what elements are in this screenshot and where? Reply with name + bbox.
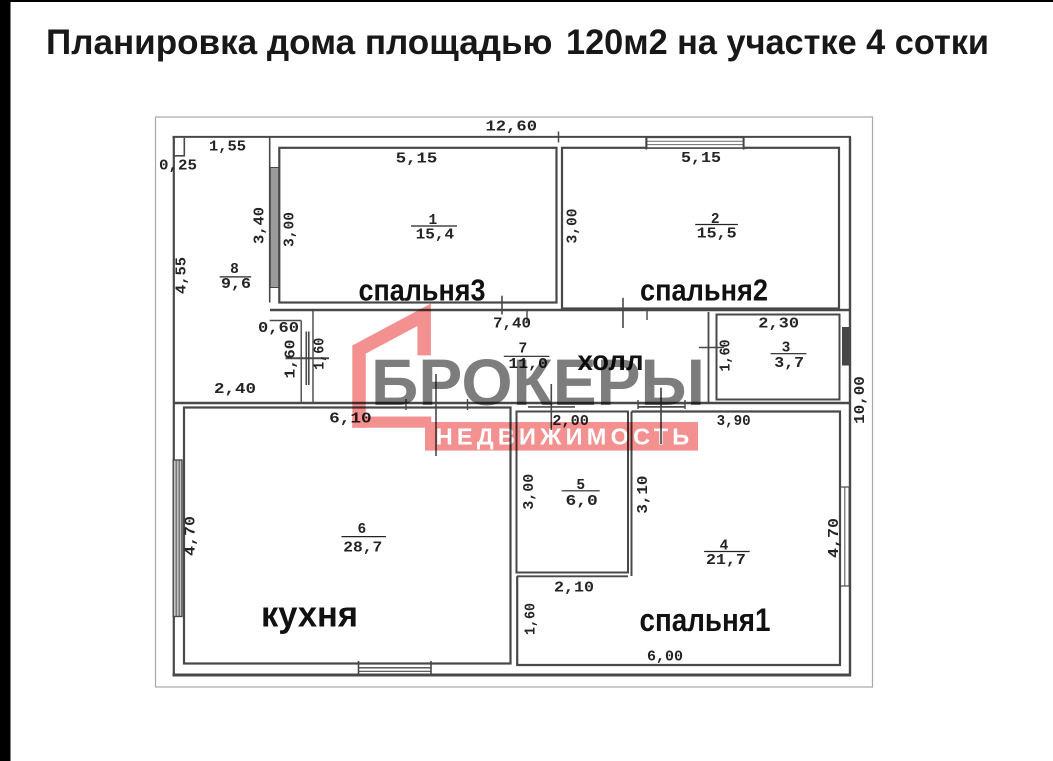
svg-text:1,55: 1,55 <box>209 140 246 156</box>
svg-text:Планировка дома площадью: Планировка дома площадью <box>46 23 553 62</box>
svg-text:5,15: 5,15 <box>681 151 721 167</box>
svg-text:6,0: 6,0 <box>566 494 598 510</box>
svg-text:1,60: 1,60 <box>719 340 735 372</box>
svg-text:1,60: 1,60 <box>284 340 300 379</box>
svg-text:28,7: 28,7 <box>343 541 382 557</box>
svg-text:9,6: 9,6 <box>221 277 251 293</box>
svg-text:кухня: кухня <box>261 594 358 635</box>
svg-text:6: 6 <box>358 522 367 538</box>
svg-text:3,00: 3,00 <box>566 209 582 244</box>
svg-text:2,40: 2,40 <box>214 382 256 398</box>
svg-text:12,60: 12,60 <box>486 120 538 136</box>
svg-text:10,00: 10,00 <box>853 376 869 424</box>
svg-text:3,90: 3,90 <box>717 414 751 430</box>
svg-text:5: 5 <box>576 478 585 494</box>
svg-text:3,00: 3,00 <box>522 474 538 510</box>
svg-text:3,00: 3,00 <box>283 212 299 247</box>
svg-text:0,60: 0,60 <box>258 321 299 337</box>
svg-text:спальня3: спальня3 <box>359 274 486 308</box>
svg-text:1,60: 1,60 <box>524 603 540 635</box>
svg-text:15,5: 15,5 <box>697 227 737 243</box>
svg-text:4,55: 4,55 <box>175 257 191 294</box>
svg-text:2,30: 2,30 <box>758 316 799 332</box>
svg-text:спальня2: спальня2 <box>640 273 768 307</box>
svg-text:21,7: 21,7 <box>706 553 746 569</box>
svg-text:15,4: 15,4 <box>416 228 455 244</box>
svg-text:7,40: 7,40 <box>493 317 531 333</box>
svg-text:5,15: 5,15 <box>396 152 438 168</box>
svg-text:4,70: 4,70 <box>184 516 200 556</box>
svg-text:4,70: 4,70 <box>827 518 843 558</box>
svg-text:2,10: 2,10 <box>554 580 594 596</box>
svg-text:1,60: 1,60 <box>313 338 329 370</box>
svg-text:0,25: 0,25 <box>159 158 197 174</box>
svg-text:3,7: 3,7 <box>774 356 804 372</box>
svg-text:6,00: 6,00 <box>647 650 683 666</box>
svg-text:120м2 на участке 4 сотки: 120м2 на участке 4 сотки <box>566 23 989 62</box>
svg-text:БРОКЕРЫ: БРОКЕРЫ <box>371 345 705 419</box>
svg-text:3,10: 3,10 <box>636 476 652 514</box>
svg-text:3,40: 3,40 <box>253 207 269 244</box>
svg-text:8: 8 <box>230 262 239 278</box>
svg-text:спальня1: спальня1 <box>640 602 771 638</box>
